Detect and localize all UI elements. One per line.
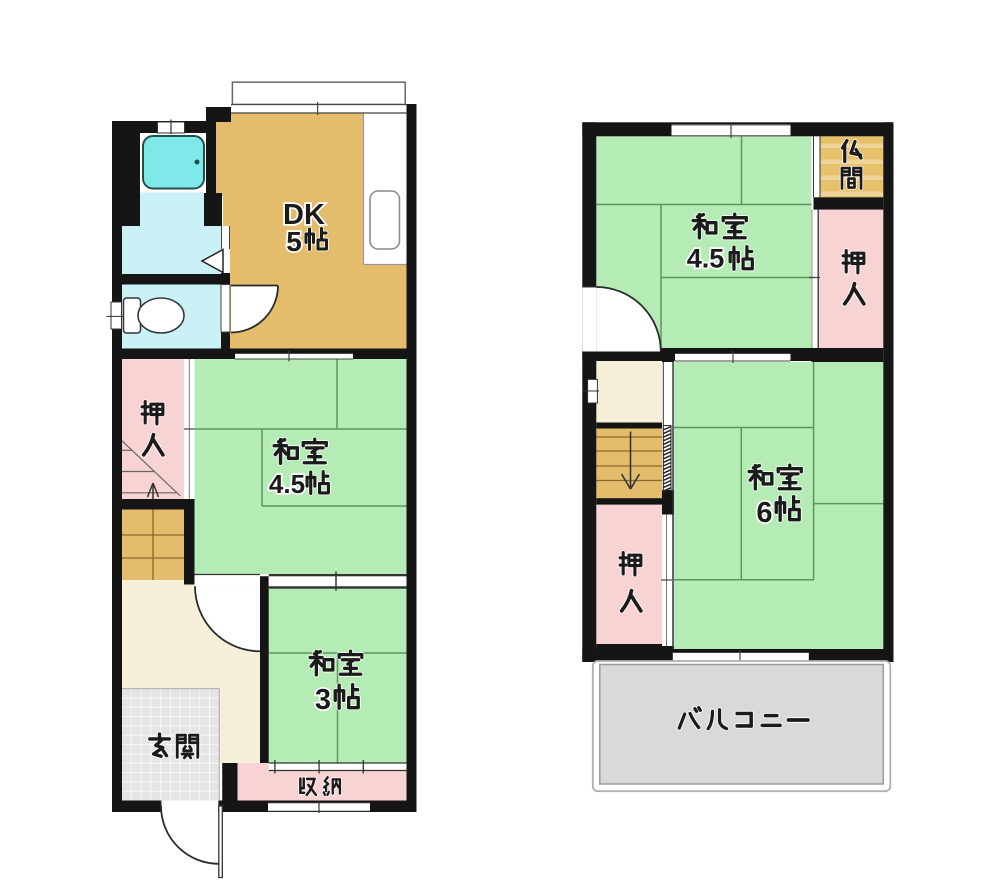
svg-text:6: 6 [756, 497, 772, 529]
svg-text:5: 5 [286, 226, 302, 257]
svg-text:3: 3 [315, 684, 331, 716]
svg-text:4.5: 4.5 [269, 469, 305, 499]
svg-text:4.5: 4.5 [687, 244, 725, 274]
